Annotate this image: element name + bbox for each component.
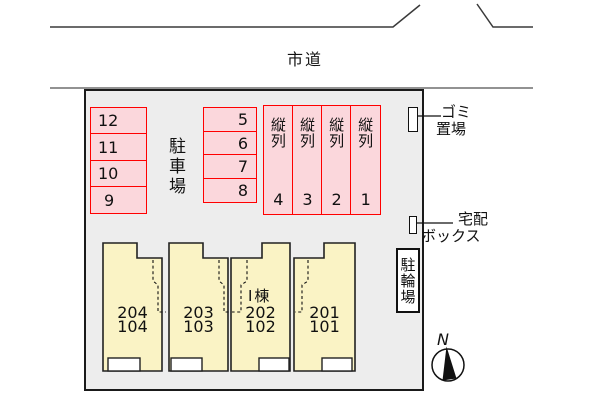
parking-stall-8: 8 — [203, 178, 257, 203]
parking-block-tandem: 縦列 4 縦列 3 縦列 2 縦列 1 — [263, 105, 381, 215]
garbage-area-label-line2: 置場 — [436, 118, 466, 139]
parking-stall-11: 11 — [90, 133, 147, 161]
tandem-number: 4 — [273, 190, 283, 209]
unit-room-label-203: 203 103 — [169, 306, 228, 334]
road-edge-right — [477, 4, 533, 27]
unit-room-label-204: 204 104 — [103, 306, 162, 334]
tandem-label: 縦列 — [268, 117, 289, 149]
tandem-number: 3 — [302, 190, 312, 209]
parking-stall-7: 7 — [203, 154, 257, 179]
delivery-box-label-line2: ボックス — [421, 225, 481, 246]
bicycle-parking-box: 駐輪場 — [396, 248, 420, 313]
parking-block-middle: 5 6 7 8 — [203, 107, 257, 203]
compass-needle-icon — [443, 347, 457, 381]
garbage-area-box — [408, 107, 418, 132]
unit-room-label-202: 202 102 — [231, 306, 290, 334]
unit-room-label-201: 201 101 — [294, 306, 355, 334]
parking-stall-5: 5 — [203, 107, 257, 132]
parking-stall-6: 6 — [203, 131, 257, 156]
room-number-lower: 102 — [231, 320, 290, 334]
north-label: N — [437, 330, 449, 349]
room-number-lower: 101 — [294, 320, 355, 334]
parking-area-label: 駐車場 — [163, 137, 188, 197]
site-plan: 市道 12 11 10 9 駐車場 5 6 7 8 縦列 4 縦列 3 縦列 2… — [0, 0, 600, 400]
delivery-box-marker — [409, 216, 417, 234]
tandem-label: 縦列 — [297, 117, 318, 149]
tandem-label: 縦列 — [326, 117, 347, 149]
tandem-number: 2 — [331, 190, 341, 209]
road-label: 市道 — [287, 46, 323, 70]
road-edge-left — [50, 5, 420, 27]
room-number-lower: 103 — [169, 320, 228, 334]
tandem-number: 1 — [361, 190, 371, 209]
parking-stall-9: 9 — [90, 186, 147, 214]
tandem-column-2: 縦列 2 — [321, 105, 352, 215]
tandem-column-3: 縦列 3 — [292, 105, 323, 215]
tandem-column-1: 縦列 1 — [350, 105, 381, 215]
parking-stall-12: 12 — [90, 107, 147, 135]
parking-stall-10: 10 — [90, 160, 147, 188]
parking-block-left: 12 11 10 9 — [90, 107, 147, 214]
tandem-column-4: 縦列 4 — [263, 105, 294, 215]
compass-circle — [432, 349, 464, 381]
room-number-lower: 104 — [103, 320, 162, 334]
tandem-label: 縦列 — [355, 117, 376, 149]
